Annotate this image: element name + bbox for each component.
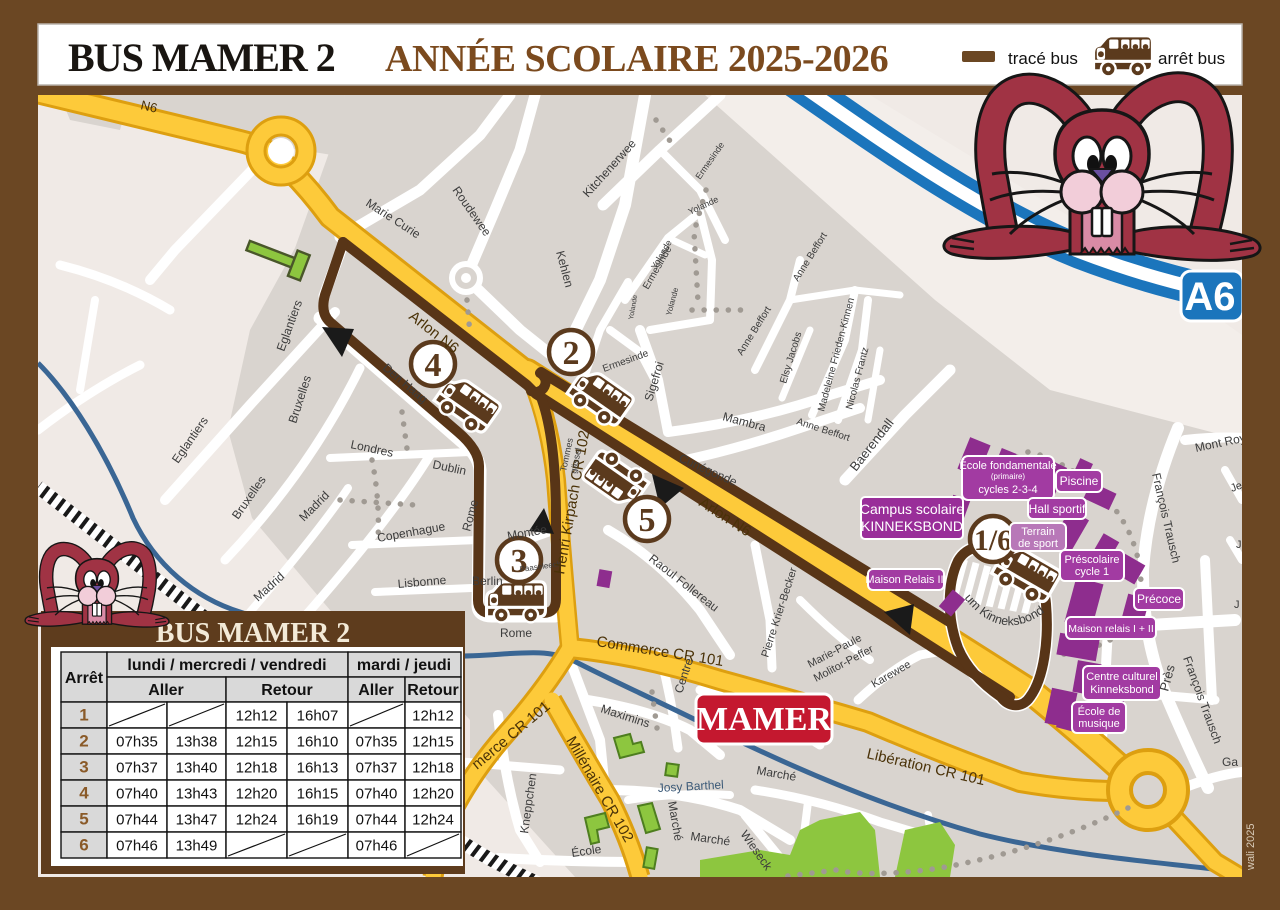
svg-text:Maison Relais III: Maison Relais III [865,574,946,586]
svg-text:arrêt bus: arrêt bus [1158,49,1225,68]
svg-text:musique: musique [1078,718,1120,730]
svg-text:16h13: 16h13 [297,760,339,777]
svg-text:Piscine: Piscine [1060,474,1099,488]
svg-text:2: 2 [79,732,88,751]
svg-text:tracé bus: tracé bus [1008,49,1078,68]
svg-text:Préscolaire: Préscolaire [1064,554,1119,566]
svg-text:07h46: 07h46 [356,838,398,855]
svg-text:12h20: 12h20 [236,786,278,803]
svg-text:Retour: Retour [407,682,459,699]
svg-text:16h15: 16h15 [297,786,339,803]
svg-text:Maison relais I + II: Maison relais I + II [1068,623,1154,635]
svg-text:4: 4 [79,784,89,803]
svg-text:J: J [1234,599,1240,611]
svg-text:16h19: 16h19 [297,812,339,829]
svg-text:(primaire): (primaire) [991,472,1026,481]
svg-text:Terrain: Terrain [1021,526,1055,538]
svg-text:École fondamentale: École fondamentale [959,459,1056,472]
svg-text:1: 1 [79,706,88,725]
svg-text:Hall sportif: Hall sportif [1029,502,1086,516]
svg-text:mardi / jeudi: mardi / jeudi [357,657,451,674]
svg-text:5: 5 [639,502,656,539]
svg-text:2: 2 [563,335,580,372]
svg-text:Aller: Aller [148,682,184,699]
svg-text:07h40: 07h40 [356,786,398,803]
svg-text:KINNEKSBOND: KINNEKSBOND [861,518,963,534]
svg-text:Retour: Retour [261,682,313,699]
svg-text:16h10: 16h10 [297,734,339,751]
svg-text:07h44: 07h44 [356,812,398,829]
svg-text:École de: École de [1078,705,1121,718]
svg-text:12h15: 12h15 [412,734,454,751]
svg-text:Rome: Rome [500,626,532,640]
svg-text:BUS MAMER 2: BUS MAMER 2 [68,35,335,80]
svg-text:Arrêt: Arrêt [65,670,104,687]
svg-text:6: 6 [79,836,88,855]
svg-text:5: 5 [79,810,88,829]
svg-text:13h40: 13h40 [176,760,218,777]
svg-text:Précoce: Précoce [1137,592,1181,606]
svg-text:07h37: 07h37 [356,760,398,777]
svg-text:BUS MAMER 2: BUS MAMER 2 [156,618,350,649]
svg-text:13h38: 13h38 [176,734,218,751]
svg-text:07h44: 07h44 [116,812,158,829]
svg-text:Centre culturel: Centre culturel [1086,671,1158,683]
svg-text:13h47: 13h47 [176,812,218,829]
svg-text:3: 3 [511,543,528,580]
svg-text:16h07: 16h07 [297,708,339,725]
svg-text:12h18: 12h18 [236,760,278,777]
svg-text:07h40: 07h40 [116,786,158,803]
svg-text:12h12: 12h12 [412,708,454,725]
svg-text:12h24: 12h24 [412,812,454,829]
svg-text:3: 3 [79,758,88,777]
svg-text:Ga: Ga [1222,755,1238,769]
svg-text:cycle 1: cycle 1 [1075,566,1109,578]
svg-text:Kinneksbond: Kinneksbond [1090,684,1154,696]
svg-text:J: J [1236,539,1242,551]
svg-text:4: 4 [425,347,442,384]
svg-text:MAMER: MAMER [696,701,832,738]
svg-text:13h43: 13h43 [176,786,218,803]
svg-text:07h46: 07h46 [116,838,158,855]
svg-text:A6: A6 [1184,275,1235,319]
svg-text:07h35: 07h35 [356,734,398,751]
svg-text:lundi / mercredi / vendredi: lundi / mercredi / vendredi [127,657,326,674]
svg-text:12h12: 12h12 [236,708,278,725]
svg-text:de sport: de sport [1018,538,1058,550]
svg-text:12h24: 12h24 [236,812,278,829]
svg-text:cycles 2-3-4: cycles 2-3-4 [978,484,1037,496]
svg-text:07h37: 07h37 [116,760,158,777]
svg-text:12h15: 12h15 [236,734,278,751]
svg-text:12h18: 12h18 [412,760,454,777]
svg-text:wali 2025: wali 2025 [1245,824,1257,871]
svg-text:Aller: Aller [358,682,394,699]
svg-text:Berlin: Berlin [472,574,503,588]
svg-text:07h35: 07h35 [116,734,158,751]
svg-text:1/6: 1/6 [974,524,1012,557]
svg-text:12h20: 12h20 [412,786,454,803]
svg-text:ANNÉE SCOLAIRE 2025-2026: ANNÉE SCOLAIRE 2025-2026 [385,38,888,80]
svg-text:13h49: 13h49 [176,838,218,855]
svg-text:Campus scolaire: Campus scolaire [860,501,964,517]
